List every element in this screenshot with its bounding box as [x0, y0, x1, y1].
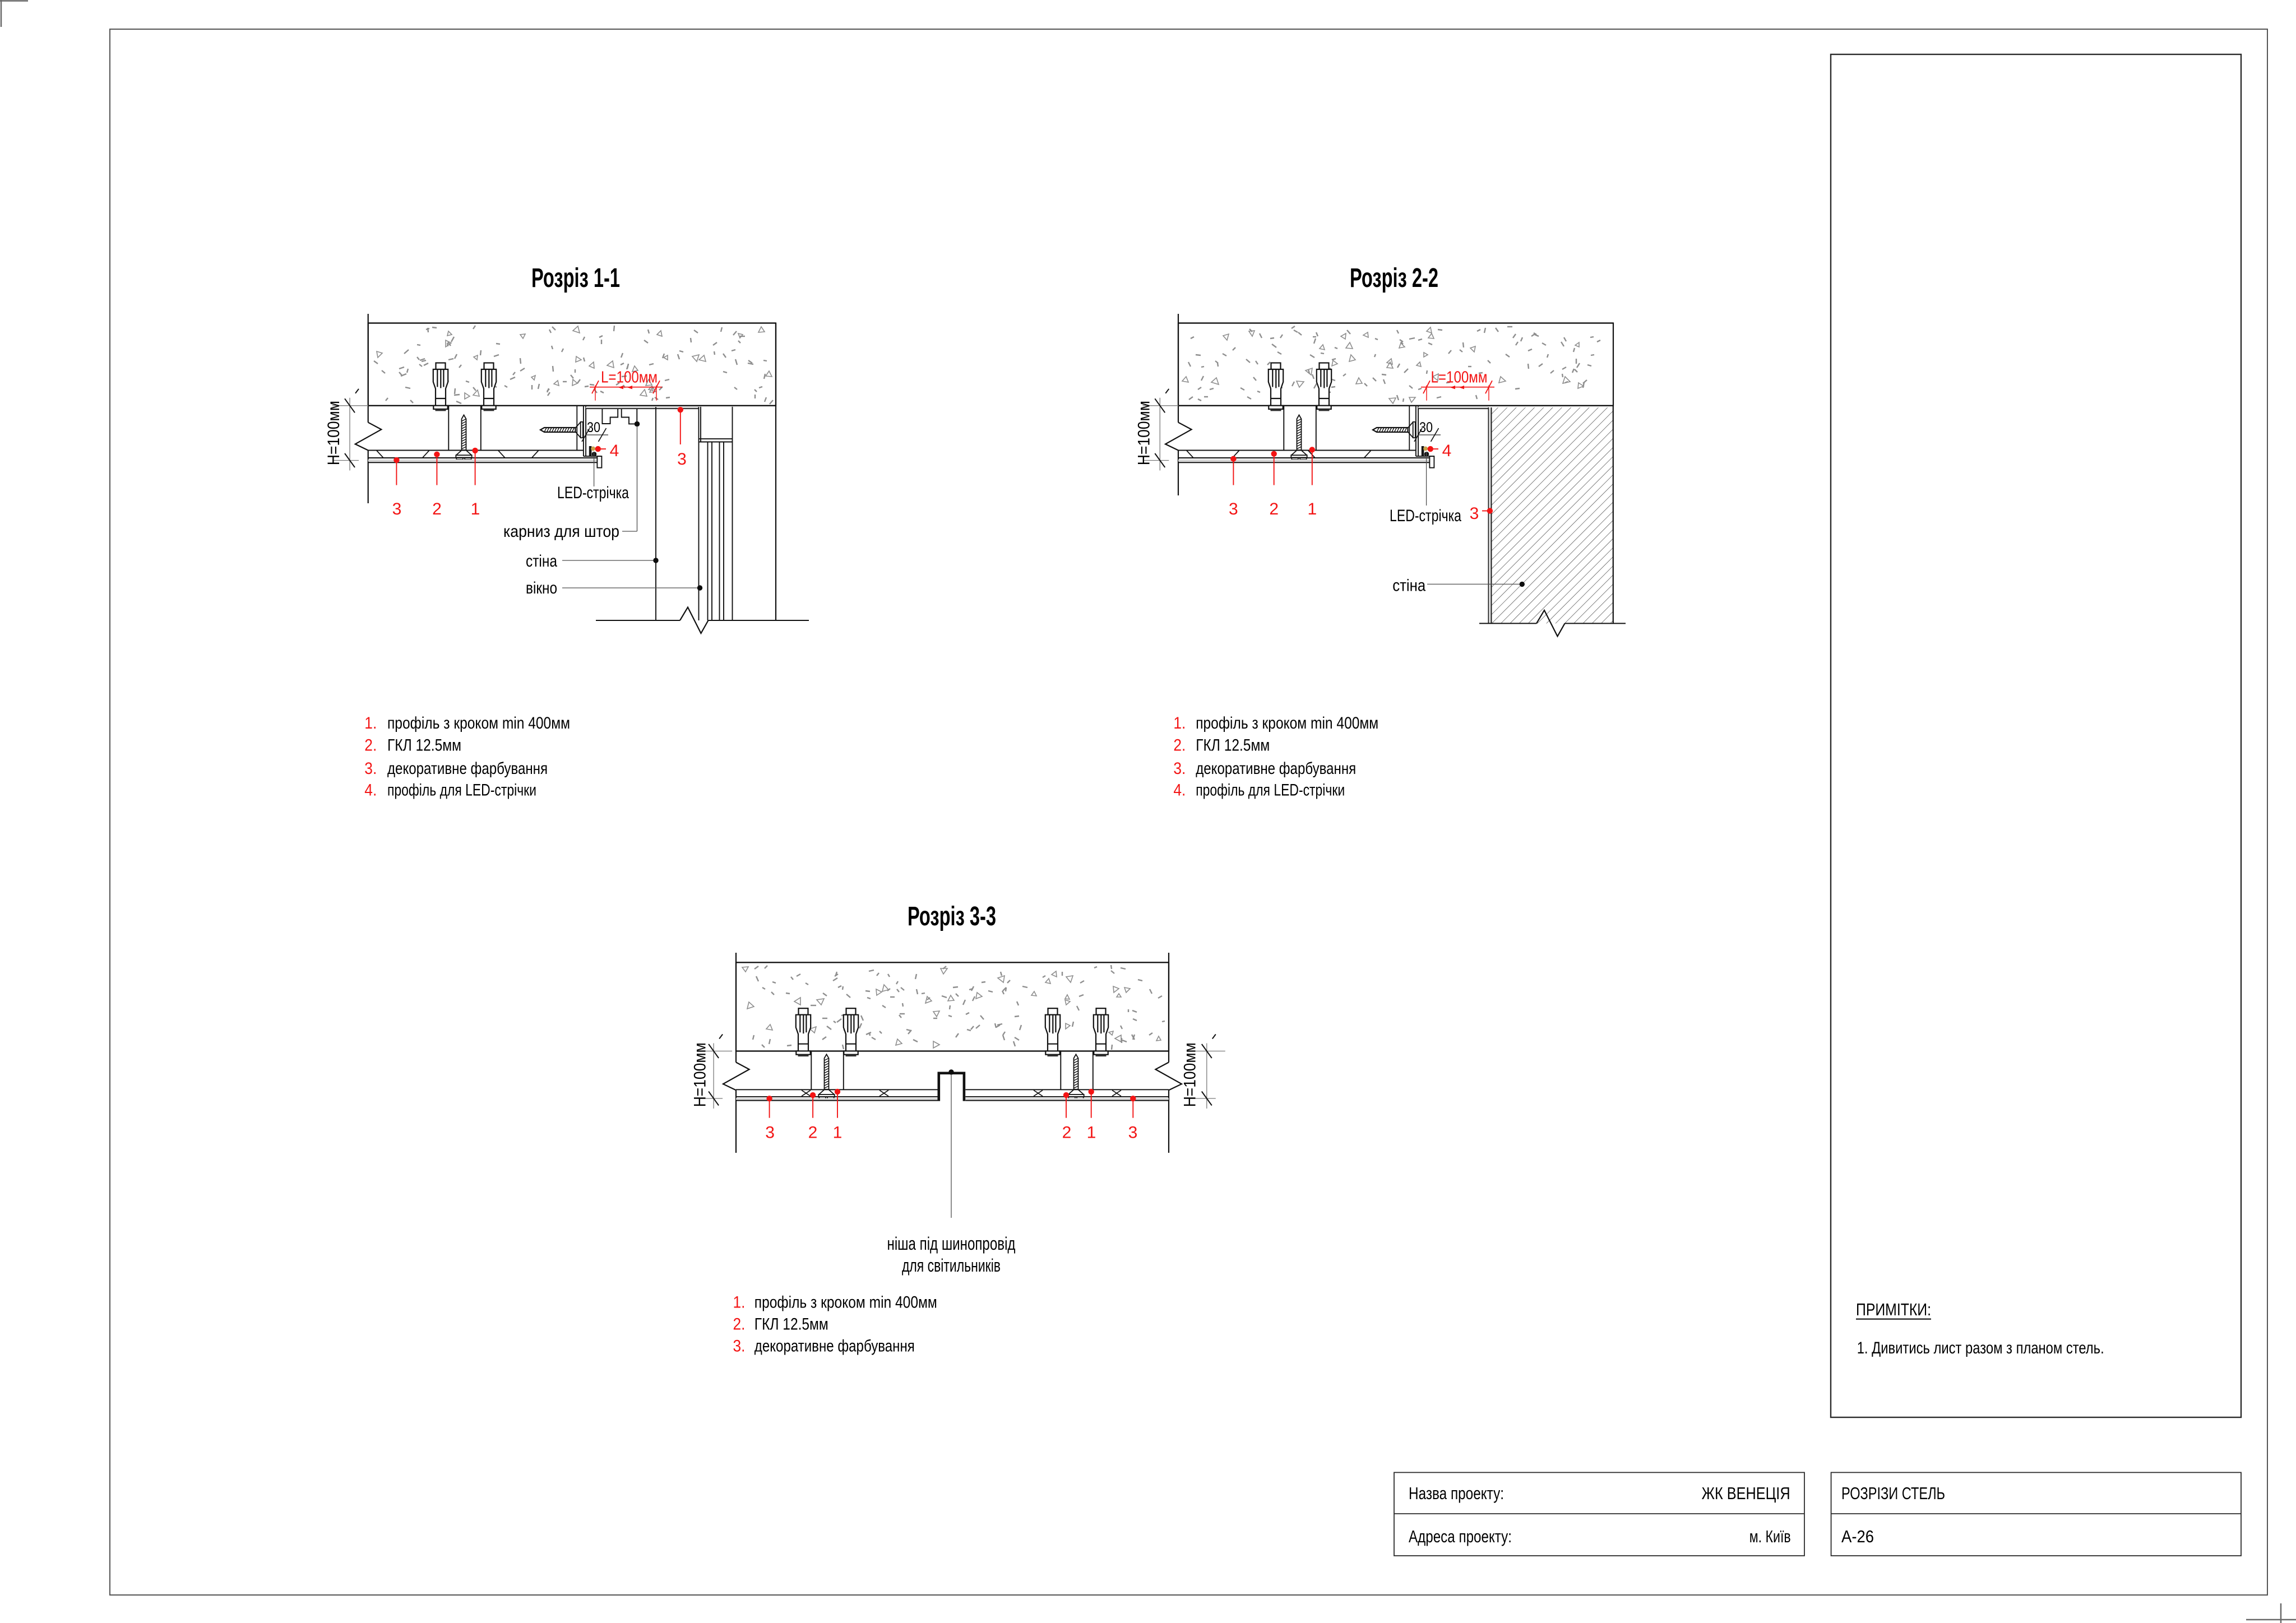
svg-text:ніша під шинопровід: ніша під шинопровід — [887, 1234, 1016, 1254]
svg-text:1.: 1. — [1173, 714, 1186, 732]
svg-text:3: 3 — [765, 1124, 775, 1142]
svg-text:профіль для LED-стрічки: профіль для LED-стрічки — [1196, 781, 1345, 800]
svg-text:2: 2 — [432, 500, 442, 518]
svg-text:H=100мм: H=100мм — [1181, 1042, 1200, 1107]
svg-text:4.: 4. — [364, 781, 377, 800]
svg-text:4.: 4. — [1173, 781, 1186, 800]
svg-text:Адреса проекту:: Адреса проекту: — [1409, 1527, 1512, 1546]
svg-text:2: 2 — [1062, 1124, 1072, 1142]
svg-text:3: 3 — [677, 450, 687, 469]
svg-text:3: 3 — [1470, 504, 1479, 523]
svg-text:1.: 1. — [733, 1293, 746, 1312]
svg-text:1: 1 — [833, 1124, 843, 1142]
svg-text:ГКЛ 12.5мм: ГКЛ 12.5мм — [754, 1315, 828, 1334]
svg-text:1.: 1. — [364, 714, 377, 732]
svg-text:3: 3 — [1128, 1124, 1138, 1142]
svg-text:30: 30 — [587, 420, 600, 435]
svg-text:профіль з кроком min 400мм: профіль з кроком min 400мм — [754, 1293, 937, 1312]
svg-text:РОЗРІЗИ СТЕЛЬ: РОЗРІЗИ СТЕЛЬ — [1841, 1483, 1945, 1503]
svg-text:декоративне фарбування: декоративне фарбування — [387, 759, 548, 778]
svg-text:декоративне фарбування: декоративне фарбування — [1196, 759, 1356, 778]
svg-text:профіль з кроком min 400мм: профіль з кроком min 400мм — [387, 714, 570, 732]
svg-text:ЖК ВЕНЕЦІЯ: ЖК ВЕНЕЦІЯ — [1702, 1483, 1790, 1503]
svg-text:H=100мм: H=100мм — [1135, 401, 1154, 465]
svg-text:стіна: стіна — [526, 552, 557, 571]
svg-text:профіль з кроком min 400мм: профіль з кроком min 400мм — [1196, 714, 1378, 732]
svg-text:м. Київ: м. Київ — [1749, 1527, 1791, 1546]
svg-text:3.: 3. — [1173, 759, 1186, 778]
svg-text:LED-стрічка: LED-стрічка — [557, 484, 629, 502]
svg-text:2: 2 — [1269, 500, 1279, 518]
svg-text:30: 30 — [1419, 420, 1433, 435]
svg-text:ПРИМІТКИ:: ПРИМІТКИ: — [1856, 1300, 1931, 1319]
svg-text:А-26: А-26 — [1841, 1527, 1874, 1546]
svg-text:карниз для штор: карниз для штор — [503, 522, 619, 541]
svg-text:L=100мм: L=100мм — [1431, 369, 1488, 387]
svg-text:3.: 3. — [364, 759, 377, 778]
svg-text:LED-стрічка: LED-стрічка — [1390, 507, 1461, 525]
svg-text:профіль для LED-стрічки: профіль для LED-стрічки — [387, 781, 536, 800]
svg-text:Розріз 3-3: Розріз 3-3 — [908, 902, 996, 931]
svg-text:1: 1 — [471, 500, 480, 518]
svg-text:L=100мм: L=100мм — [601, 369, 658, 387]
svg-text:4: 4 — [610, 442, 619, 460]
svg-text:1. Дивитись лист разом з плано: 1. Дивитись лист разом з планом стель. — [1857, 1339, 2104, 1357]
svg-text:3: 3 — [392, 500, 402, 518]
svg-text:4: 4 — [1442, 442, 1452, 460]
svg-text:H=100мм: H=100мм — [325, 401, 343, 465]
svg-text:1: 1 — [1087, 1124, 1096, 1142]
svg-text:Розріз 2-2: Розріз 2-2 — [1350, 263, 1438, 293]
svg-text:3.: 3. — [733, 1337, 746, 1356]
svg-text:декоративне фарбування: декоративне фарбування — [754, 1337, 915, 1356]
svg-text:2.: 2. — [733, 1315, 746, 1334]
svg-text:Назва проекту:: Назва проекту: — [1409, 1483, 1504, 1503]
svg-text:стіна: стіна — [1392, 577, 1425, 595]
svg-text:для світильників: для світильників — [902, 1255, 1001, 1276]
svg-text:ГКЛ 12.5мм: ГКЛ 12.5мм — [1196, 736, 1270, 755]
svg-text:вікно: вікно — [526, 579, 557, 597]
svg-text:ГКЛ 12.5мм: ГКЛ 12.5мм — [387, 736, 461, 755]
svg-text:2.: 2. — [1173, 736, 1186, 755]
svg-text:2.: 2. — [364, 736, 377, 755]
svg-text:2: 2 — [808, 1124, 818, 1142]
svg-text:1: 1 — [1307, 500, 1317, 518]
svg-text:H=100мм: H=100мм — [691, 1042, 710, 1107]
svg-text:Розріз 1-1: Розріз 1-1 — [531, 263, 620, 293]
svg-text:3: 3 — [1229, 500, 1238, 518]
